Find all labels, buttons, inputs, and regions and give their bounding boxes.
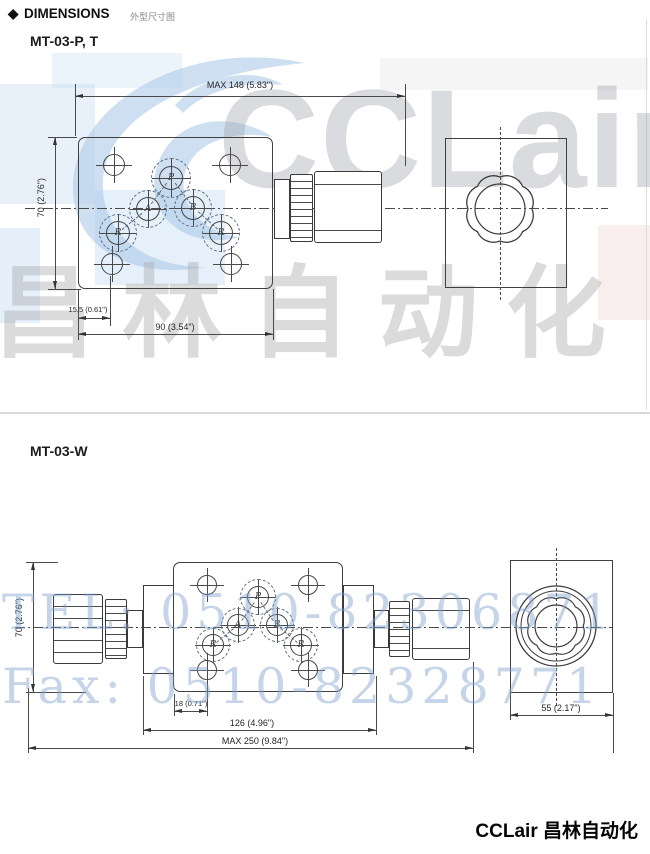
end-view-centerline-v-1 — [500, 127, 501, 300]
port-b: B — [181, 196, 205, 220]
dim-height1-line — [55, 137, 56, 289]
watermark-fax: Fax: 0510-82328771 — [2, 658, 602, 715]
adjust-knob-1 — [314, 171, 382, 243]
dim-arrow — [28, 746, 36, 750]
dim-arrow — [265, 332, 273, 336]
dim-arrow — [368, 728, 376, 732]
watermark-tel: TEL: 0510-82306871 — [2, 584, 616, 641]
dim-arrow — [53, 137, 57, 145]
knob-rib — [315, 230, 381, 231]
dim-arrow — [465, 746, 473, 750]
page-title: DIMENSIONS — [24, 6, 110, 21]
section2-title: MT-03-W — [30, 443, 88, 459]
section-divider — [0, 412, 650, 414]
dim-arrow — [605, 713, 613, 717]
dim-max250-line — [28, 748, 473, 749]
dim-bodylength-line — [143, 730, 376, 731]
dim-offset1-label: 15.5 (0.61") — [62, 305, 114, 314]
bolt-hole — [219, 154, 241, 176]
dim-arrow — [143, 728, 151, 732]
dim-max148-line — [75, 96, 405, 97]
section1-title: MT-03-P, T — [30, 33, 98, 49]
bolt-hole — [220, 253, 242, 275]
dim-max148-label: MAX 148 (5.83") — [150, 80, 330, 90]
dim-width1-label: 90 (3.54") — [125, 322, 225, 332]
page-title-cn: 外型尺寸图 — [130, 10, 175, 23]
dim-ext-line — [613, 693, 614, 753]
dim-arrow — [397, 94, 405, 98]
valve-neck-1 — [274, 179, 290, 239]
bolt-hole — [101, 253, 123, 275]
dim-arrow — [75, 94, 83, 98]
dim-ext-line — [273, 289, 274, 340]
knob-rib — [54, 652, 102, 653]
dim-arrow — [102, 316, 110, 320]
dim-arrow — [78, 316, 86, 320]
bolt-hole — [103, 154, 125, 176]
knob-rib — [315, 184, 381, 185]
dim-ext-line — [48, 137, 77, 138]
port-a: A — [136, 197, 160, 221]
dim-width1-line — [78, 334, 273, 335]
locknut-ring-1 — [290, 174, 313, 242]
dim-bodylength-label: 126 (4.96") — [202, 718, 302, 728]
footer-brand: CCLair 昌林自动化 — [475, 816, 638, 843]
dim-max250-label: MAX 250 (9.84") — [165, 736, 345, 746]
dim-height1-label: 70 (2.76") — [36, 178, 46, 217]
catalog-page: CCLair 昌林自动化 ◆ DIMENSIONS 外型尺寸图 MT-03-P,… — [0, 0, 650, 854]
dim-ext-line — [110, 276, 111, 326]
dim-ext-line — [48, 289, 81, 290]
diamond-icon: ◆ — [8, 6, 18, 22]
dim-ext-line — [26, 562, 58, 563]
dim-ext-line — [405, 84, 406, 166]
dim-arrow — [78, 332, 86, 336]
dim-endwidth-line — [510, 715, 613, 716]
knob-rib — [413, 648, 469, 649]
dim-arrow — [31, 562, 35, 570]
dim-arrow — [53, 281, 57, 289]
dim-ext-line — [75, 84, 76, 136]
